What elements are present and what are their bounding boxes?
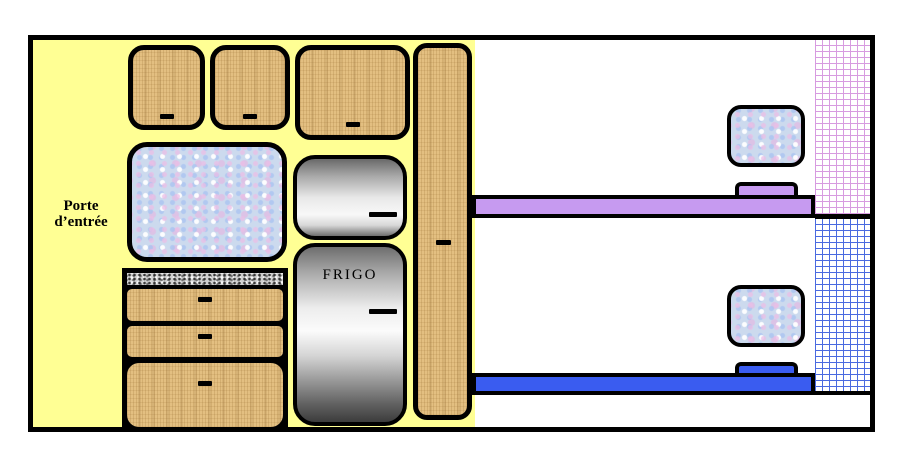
entrance-door-label: Porte d’entrée — [37, 198, 125, 230]
drawer-3 — [127, 363, 283, 427]
window-top — [727, 105, 805, 167]
drawer-unit — [122, 268, 288, 427]
bottom-bunk-bed — [472, 373, 815, 395]
oven-handle-icon — [369, 212, 397, 217]
cabinet-handle-icon — [346, 122, 360, 127]
wall-cabinet-2 — [210, 45, 290, 130]
drawer-handle-icon — [198, 381, 212, 386]
drawer-1 — [127, 289, 283, 321]
wall-panel-blue-brick — [815, 219, 870, 395]
fridge-label: FRIGO — [297, 267, 403, 284]
wall-cabinet-3 — [295, 45, 410, 140]
camper-floor-plan: Porte d’entrée FRIGO — [0, 0, 908, 464]
fridge: FRIGO — [293, 243, 407, 426]
oven — [293, 155, 407, 240]
countertop — [127, 273, 283, 285]
window-bottom — [727, 285, 805, 347]
plan-outline: Porte d’entrée FRIGO — [28, 35, 875, 432]
wall-cabinet-1 — [128, 45, 205, 130]
fridge-handle-icon — [369, 309, 397, 314]
wall-panel-pink-brick — [815, 40, 870, 219]
drawer-2 — [127, 326, 283, 357]
drawer-handle-icon — [198, 297, 212, 302]
cabinet-handle-icon — [160, 114, 174, 119]
cabinet-handle-icon — [436, 240, 451, 245]
entrance-door-label-line1: Porte — [37, 198, 125, 214]
top-bunk-bed — [472, 195, 815, 218]
cabinet-handle-icon — [243, 114, 257, 119]
entrance-door-label-line2: d’entrée — [37, 214, 125, 230]
sink-worktop — [127, 142, 287, 262]
drawer-handle-icon — [198, 334, 212, 339]
tall-cabinet — [413, 43, 472, 420]
